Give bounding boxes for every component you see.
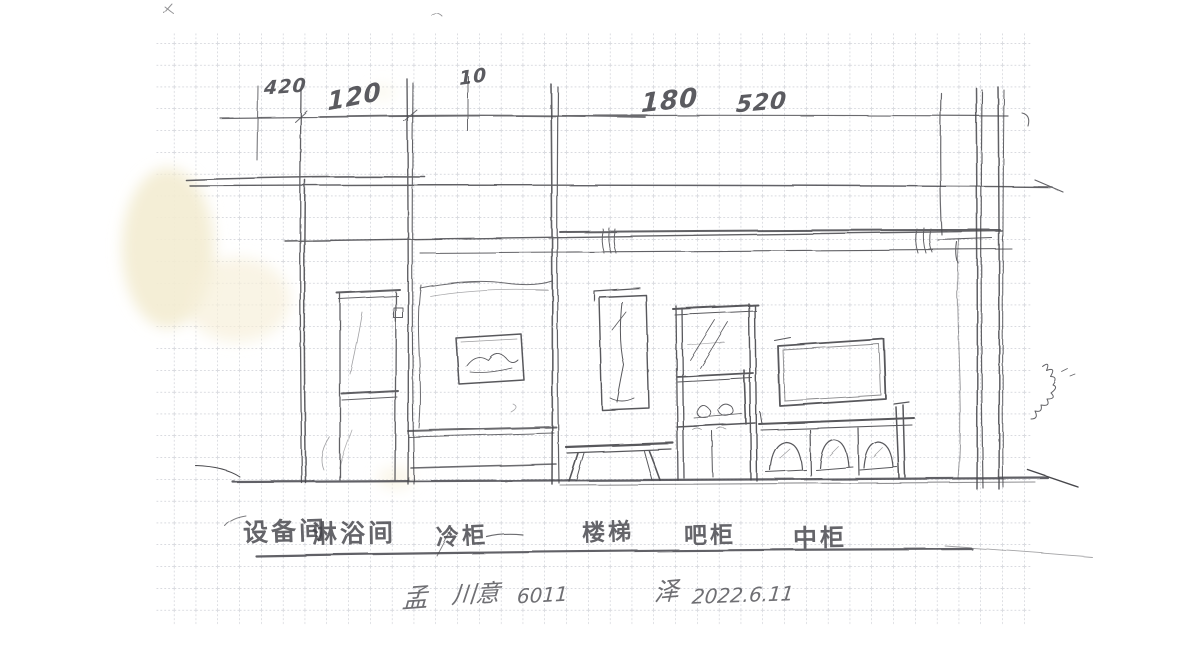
signature-number: 6011 [516,582,568,609]
label-shower-room: 淋浴间 [312,513,397,550]
plant-doodle [1031,365,1075,419]
dimension-label-520: 520 [735,88,788,119]
signature-mark: 泽 [654,571,680,609]
sketch-drawing [0,0,1201,665]
signature-lead-character: 孟 [401,577,428,616]
signature-date: 2022.6.11 [691,581,795,609]
dimension-label-10: 10 [459,64,488,90]
dimension-label-180: 180 [641,83,699,119]
label-stairs: 楼梯 [581,512,634,548]
signature-name: 川意 [450,573,501,611]
label-middle-cabinet: 中柜 [793,518,848,554]
stray-pencil-marks [164,4,442,16]
scanned-sketch-page: 420 120 10 180 520 设备间 淋浴间 冷柜 楼梯 吧柜 中柜 孟… [0,0,1201,665]
dimension-label-420: 420 [263,74,307,99]
label-fridge: 冷柜 [435,516,489,553]
label-bar-cabinet: 吧柜 [684,516,737,551]
